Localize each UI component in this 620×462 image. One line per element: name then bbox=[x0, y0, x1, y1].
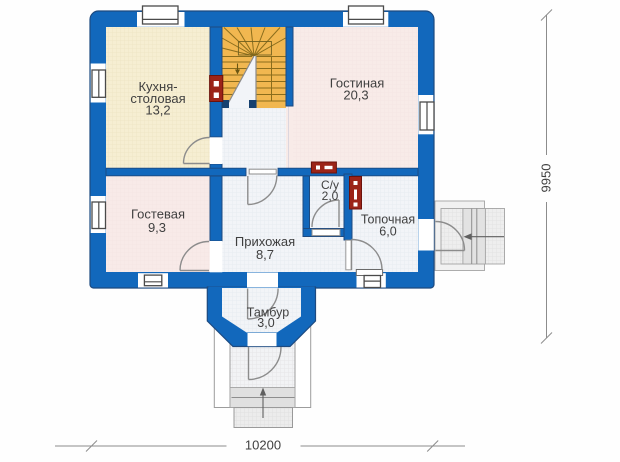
svg-text:2,0: 2,0 bbox=[322, 189, 339, 203]
svg-text:13,2: 13,2 bbox=[145, 103, 170, 118]
svg-text:20,3: 20,3 bbox=[343, 88, 368, 103]
svg-text:9950: 9950 bbox=[539, 164, 554, 193]
svg-text:10200: 10200 bbox=[245, 438, 281, 453]
svg-text:6,0: 6,0 bbox=[379, 225, 396, 239]
svg-text:9,3: 9,3 bbox=[148, 220, 166, 235]
svg-text:3,0: 3,0 bbox=[257, 316, 274, 330]
svg-text:8,7: 8,7 bbox=[256, 247, 274, 262]
